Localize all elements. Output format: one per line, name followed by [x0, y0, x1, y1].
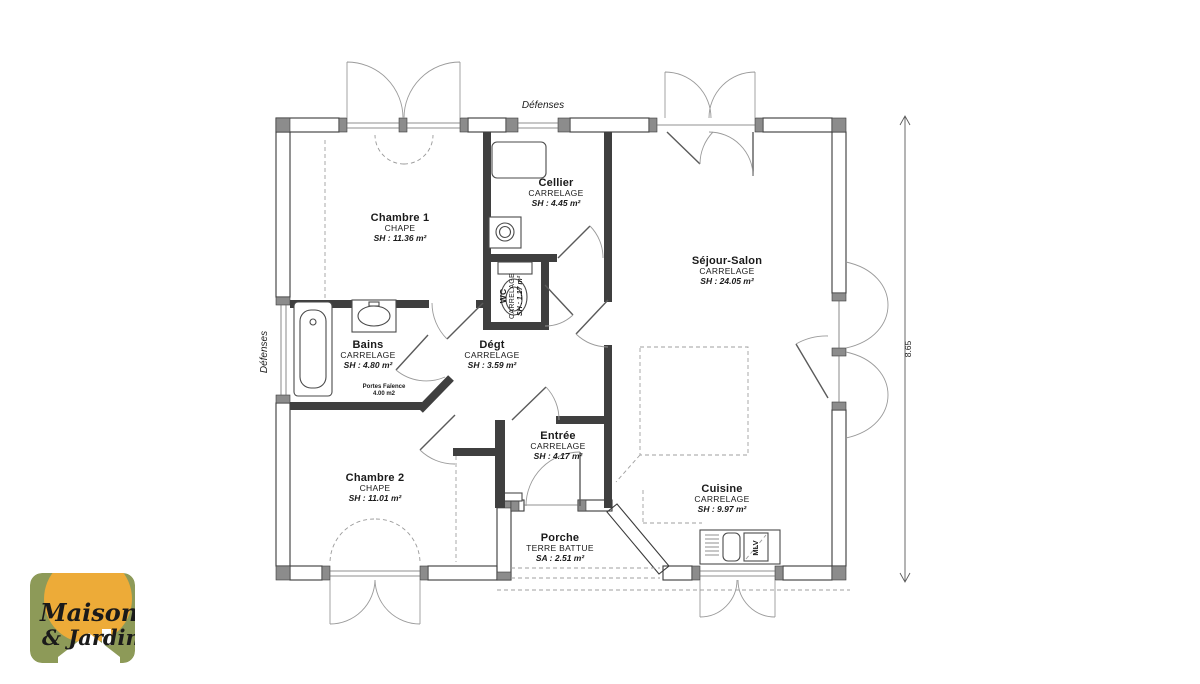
- room-label-wc-area: SH : 1.17 m²: [517, 275, 524, 316]
- freezer-icon: [492, 142, 546, 178]
- defenses-top-label: Défenses: [522, 100, 564, 111]
- washbasin-icon: [352, 300, 396, 332]
- room-label-bains-area: SH : 4.80 m²: [344, 360, 394, 370]
- room-label-degt-material: CARRELAGE: [464, 350, 519, 360]
- bains-note-line1: Portes Faïence: [363, 384, 406, 390]
- room-label-sejour-material: CARRELAGE: [699, 266, 754, 276]
- defenses-left-label: Défenses: [259, 331, 270, 373]
- room-label-chambre1-area: SH : 11.36 m²: [374, 233, 428, 243]
- room-label-chambre2-area: SH : 11.01 m²: [349, 493, 403, 503]
- logo-word-jardin: & Jardin: [42, 625, 141, 650]
- dashed-lines: [325, 140, 850, 590]
- room-label-wc: WC CARRELAGE SH : 1.17 m²: [498, 273, 524, 319]
- room-label-cuisine-material: CARRELAGE: [694, 494, 749, 504]
- room-label-cellier-area: SH : 4.45 m²: [532, 198, 582, 208]
- room-label-degt-area: SH : 3.59 m²: [468, 360, 518, 370]
- mlv-label: MLV: [751, 540, 760, 555]
- dimension-label: 8.65: [903, 340, 913, 357]
- room-label-porche-material: TERRE BATTUE: [526, 543, 594, 553]
- room-label-bains-material: CARRELAGE: [340, 350, 395, 360]
- bains-note-line2: 4.00 m2: [373, 391, 396, 397]
- room-label-wc-material: CARRELAGE: [509, 273, 516, 319]
- kitchen-sink-unit: [700, 530, 780, 564]
- room-label-entree-area: SH : 4.17 m²: [534, 451, 584, 461]
- room-label-entree-material: CARRELAGE: [530, 441, 585, 451]
- room-label-cellier-material: CARRELAGE: [528, 188, 583, 198]
- room-label-chambre1-material: CHAPE: [385, 223, 416, 233]
- room-label-chambre2-material: CHAPE: [360, 483, 391, 493]
- maison-jardin-logo: Maison & Jardin: [30, 555, 141, 663]
- room-label-cuisine-area: SH : 9.97 m²: [698, 504, 748, 514]
- room-label-sejour-area: SH : 24.05 m²: [700, 276, 755, 286]
- washing-machine-icon: [489, 217, 521, 248]
- room-label-wc-name: WC: [498, 289, 508, 304]
- bathtub-icon: [294, 302, 332, 396]
- logo-word-maison: Maison: [39, 598, 138, 627]
- floor-plan-image: Chambre 1 CHAPE SH : 11.36 m² Cellier CA…: [0, 0, 1200, 684]
- dimension-line: 8.65: [900, 116, 913, 582]
- room-label-porche-area: SA : 2.51 m²: [536, 553, 586, 563]
